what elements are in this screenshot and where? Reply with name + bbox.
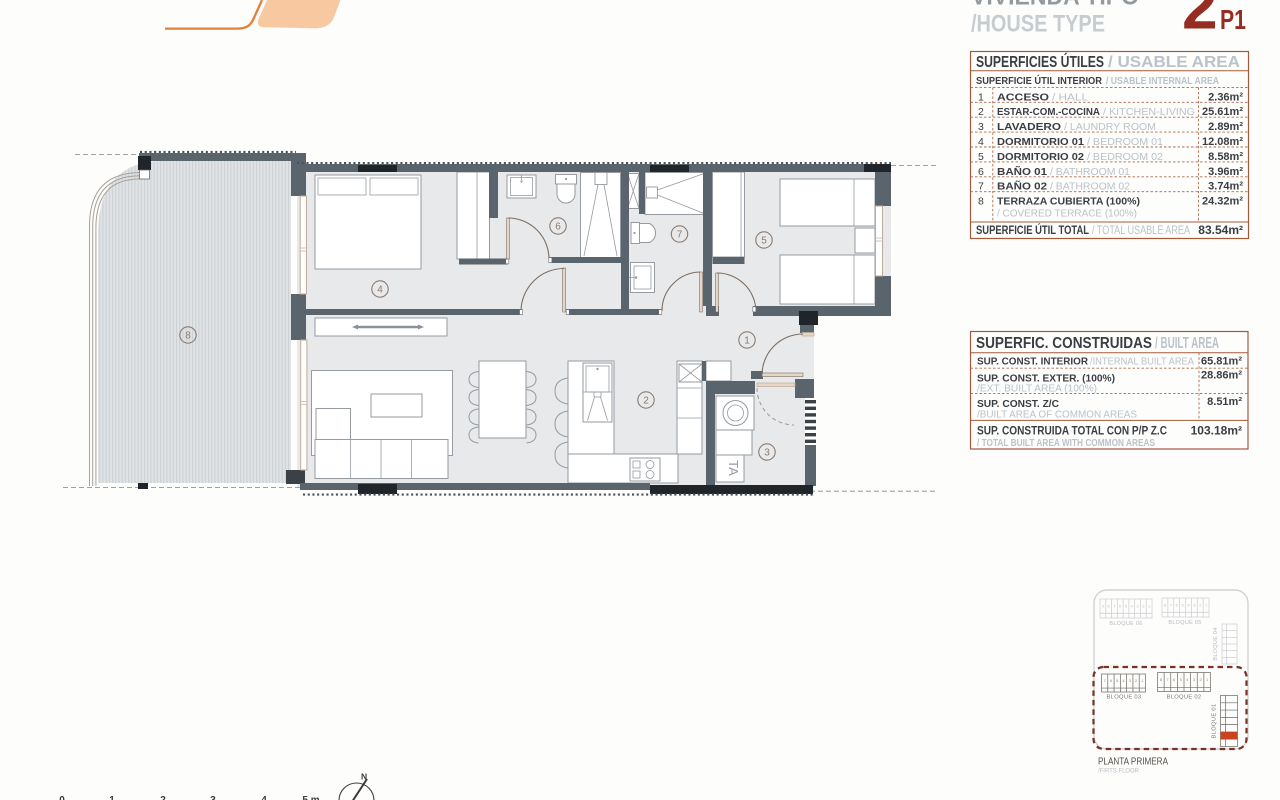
svg-text:1: 1 — [109, 795, 115, 800]
svg-text:/ USABLE AREA: / USABLE AREA — [1108, 54, 1240, 71]
svg-text:3.74m²: 3.74m² — [1208, 181, 1243, 193]
svg-text:BAÑO 02: BAÑO 02 — [997, 180, 1047, 193]
svg-text:2.36m²: 2.36m² — [1208, 91, 1243, 103]
svg-text:8.58m²: 8.58m² — [1208, 151, 1243, 163]
svg-text:5 m: 5 m — [302, 795, 319, 800]
svg-text:6: 6 — [555, 222, 561, 233]
svg-text:PLANTA PRIMERA: PLANTA PRIMERA — [1098, 756, 1168, 768]
svg-text:/FIRTS FLOOR: /FIRTS FLOOR — [1098, 768, 1139, 775]
svg-text:/INTERNAL BUILT AREA: /INTERNAL BUILT AREA — [1090, 356, 1194, 368]
svg-text:/BUILT AREA OF COMMON AREAS: /BUILT AREA OF COMMON AREAS — [977, 409, 1137, 421]
svg-text:3: 3 — [764, 448, 770, 459]
svg-text:VIVIENDA TIPO: VIVIENDA TIPO — [971, 0, 1139, 11]
svg-text:3.96m²: 3.96m² — [1208, 166, 1243, 178]
svg-text:24.32m²: 24.32m² — [1202, 196, 1243, 208]
svg-text:BLOQUE 04: BLOQUE 04 — [1213, 627, 1219, 660]
svg-text:/ HALL: / HALL — [1052, 91, 1088, 103]
svg-text:BLOQUE 05: BLOQUE 05 — [1168, 620, 1201, 626]
svg-text:N: N — [361, 772, 367, 782]
svg-text:4: 4 — [377, 285, 383, 296]
svg-text:8: 8 — [978, 196, 984, 208]
svg-text:DORMITORIO 01: DORMITORIO 01 — [997, 136, 1084, 148]
svg-text:28.86m²: 28.86m² — [1201, 370, 1242, 382]
svg-text:1: 1 — [744, 336, 750, 347]
svg-text:P1: P1 — [1220, 4, 1246, 35]
svg-text:SUP. CONST. INTERIOR: SUP. CONST. INTERIOR — [977, 356, 1088, 368]
svg-text:SUPERFIC. CONSTRUIDAS: SUPERFIC. CONSTRUIDAS — [976, 335, 1152, 352]
svg-text:/ BATHROOM 01: / BATHROOM 01 — [1050, 166, 1130, 178]
svg-text:SUPERFICIE ÚTIL INTERIOR: SUPERFICIE ÚTIL INTERIOR — [976, 74, 1102, 87]
svg-text:BLOQUE 06: BLOQUE 06 — [1109, 621, 1142, 627]
svg-text:BLOQUE 03: BLOQUE 03 — [1107, 695, 1142, 701]
svg-text:8.51m²: 8.51m² — [1207, 396, 1242, 408]
svg-text:3: 3 — [210, 795, 216, 800]
svg-text:SUPERFICIES ÚTILES: SUPERFICIES ÚTILES — [976, 53, 1104, 71]
svg-text:65.81m²: 65.81m² — [1201, 356, 1242, 368]
svg-text:3: 3 — [978, 121, 984, 133]
svg-text:BAÑO 01: BAÑO 01 — [997, 165, 1047, 178]
svg-text:2: 2 — [978, 106, 984, 118]
svg-text:LAVADERO: LAVADERO — [997, 121, 1061, 133]
svg-text:0: 0 — [59, 795, 65, 800]
svg-text:/ KITCHEN-LIVING: / KITCHEN-LIVING — [1103, 106, 1195, 118]
svg-text:/ LAUNDRY ROOM: / LAUNDRY ROOM — [1064, 121, 1156, 133]
svg-text:BLOQUE 01: BLOQUE 01 — [1212, 704, 1218, 739]
svg-text:/ USABLE INTERNAL AREA: / USABLE INTERNAL AREA — [1106, 75, 1219, 87]
svg-text:2: 2 — [160, 795, 166, 800]
svg-text:/HOUSE TYPE: /HOUSE TYPE — [971, 11, 1105, 38]
svg-text:2: 2 — [643, 396, 649, 407]
svg-text:4: 4 — [978, 136, 984, 148]
svg-text:SUP. CONSTRUIDA TOTAL CON P/P: SUP. CONSTRUIDA TOTAL CON P/P Z.C — [977, 426, 1167, 438]
svg-text:/EXT. BUILT AREA (100%): /EXT. BUILT AREA (100%) — [977, 383, 1097, 395]
svg-text:6: 6 — [978, 166, 984, 178]
svg-text:/ BEDROOM 02: / BEDROOM 02 — [1087, 151, 1163, 163]
svg-text:2: 2 — [1182, 0, 1218, 43]
svg-text:TA: TA — [726, 460, 741, 476]
svg-text:103.18m²: 103.18m² — [1191, 424, 1242, 438]
svg-text:7: 7 — [677, 230, 683, 241]
svg-text:/ BUILT AREA: / BUILT AREA — [1155, 335, 1219, 352]
svg-text:TERRAZA CUBIERTA (100%): TERRAZA CUBIERTA (100%) — [997, 196, 1140, 208]
svg-text:SUPERFICIE ÚTIL TOTAL: SUPERFICIE ÚTIL TOTAL — [976, 224, 1089, 237]
svg-text:12.08m²: 12.08m² — [1202, 136, 1243, 148]
svg-text:83.54m²: 83.54m² — [1198, 223, 1243, 237]
svg-text:7: 7 — [978, 181, 984, 193]
svg-text:25.61m²: 25.61m² — [1202, 106, 1243, 118]
svg-text:8: 8 — [185, 331, 191, 342]
svg-text:ESTAR-COM.-COCINA: ESTAR-COM.-COCINA — [997, 106, 1100, 118]
svg-text:1: 1 — [978, 91, 984, 103]
svg-text:DORMITORIO 02: DORMITORIO 02 — [997, 151, 1084, 163]
svg-text:2.89m²: 2.89m² — [1208, 121, 1243, 133]
svg-text:/ BATHROOM 02: / BATHROOM 02 — [1050, 181, 1130, 193]
svg-text:BLOQUE 02: BLOQUE 02 — [1167, 695, 1202, 701]
svg-text:5: 5 — [978, 151, 984, 163]
svg-text:ACCESO: ACCESO — [997, 91, 1049, 103]
svg-text:/ TOTAL BUILT AREA WITH COMMON: / TOTAL BUILT AREA WITH COMMON AREAS — [977, 437, 1155, 449]
svg-text:/ BEDROOM 01: / BEDROOM 01 — [1087, 136, 1163, 148]
svg-text:4: 4 — [261, 795, 267, 800]
svg-text:5: 5 — [761, 236, 767, 247]
svg-text:/ COVERED TERRACE (100%): / COVERED TERRACE (100%) — [997, 208, 1137, 220]
svg-text:/ TOTAL USABLE AREA: / TOTAL USABLE AREA — [1092, 225, 1190, 237]
